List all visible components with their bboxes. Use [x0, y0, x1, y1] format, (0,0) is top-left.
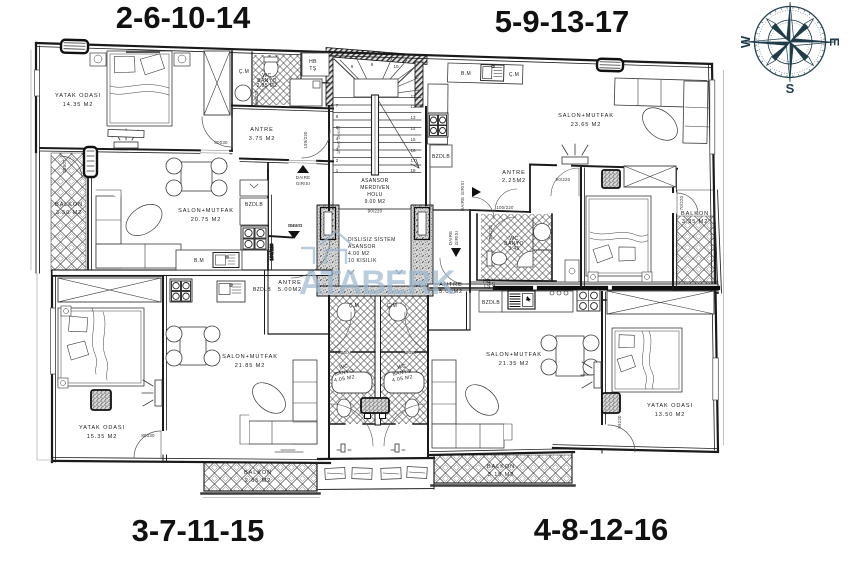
svg-text:10: 10 — [393, 64, 399, 69]
svg-text:TŞ: TŞ — [309, 66, 316, 72]
svg-text:11: 11 — [411, 94, 416, 99]
svg-text:13.50 M2: 13.50 M2 — [655, 412, 686, 418]
svg-text:ASANSOR: ASANSOR — [348, 244, 376, 250]
svg-text:W: W — [738, 35, 753, 48]
svg-text:20.75 M2: 20.75 M2 — [191, 217, 222, 223]
svg-text:BZDLB: BZDLB — [482, 300, 500, 306]
svg-text:5-9-13-17: 5-9-13-17 — [495, 4, 629, 39]
svg-text:SALON+MUTFAK: SALON+MUTFAK — [222, 354, 278, 360]
svg-text:GIRISI: GIRISI — [288, 223, 302, 228]
svg-text:99220: 99220 — [617, 415, 622, 429]
svg-text:12: 12 — [410, 104, 416, 109]
svg-text:14.35 M2: 14.35 M2 — [63, 102, 94, 108]
svg-text:GIRISI: GIRISI — [296, 181, 310, 186]
svg-text:16: 16 — [410, 148, 416, 153]
svg-text:15: 15 — [410, 137, 416, 142]
svg-text:E: E — [827, 38, 842, 47]
svg-text:B.M: B.M — [194, 258, 204, 264]
svg-text:BZDLB: BZDLB — [253, 287, 271, 293]
svg-text:BALKON: BALKON — [244, 470, 272, 476]
svg-text:MERDIVEN: MERDIVEN — [360, 185, 390, 191]
svg-text:YATAK ODASI: YATAK ODASI — [55, 93, 101, 99]
svg-text:YATAK ODASI: YATAK ODASI — [79, 425, 125, 431]
svg-text:3.75 M2: 3.75 M2 — [249, 136, 276, 142]
svg-text:05507: 05507 — [62, 159, 67, 173]
svg-text:0S200: 0S200 — [335, 350, 349, 355]
svg-text:3-7-11-15: 3-7-11-15 — [132, 513, 265, 548]
svg-text:BZDLB: BZDLB — [245, 202, 263, 208]
svg-text:90030: 90030 — [403, 350, 417, 355]
svg-text:BALKON: BALKON — [487, 464, 515, 470]
svg-text:HOLU: HOLU — [367, 192, 383, 198]
svg-text:ASANSOR: ASANSOR — [361, 178, 388, 184]
svg-text:DAIRE GIRISI: DAIRE GIRISI — [460, 181, 465, 211]
svg-text:90/220: 90/220 — [368, 209, 383, 214]
svg-text:9.00 M2: 9.00 M2 — [365, 199, 386, 205]
svg-text:B.M: B.M — [461, 71, 471, 77]
svg-text:21.85 M2: 21.85 M2 — [235, 363, 266, 369]
svg-text:ATABERK: ATABERK — [299, 264, 456, 302]
svg-text:13: 13 — [410, 115, 416, 120]
svg-text:Ç.M: Ç.M — [387, 303, 397, 309]
svg-text:SALON+MUTFAK: SALON+MUTFAK — [178, 208, 234, 214]
svg-text:4.00 M2: 4.00 M2 — [348, 251, 370, 257]
svg-text:HB: HB — [309, 59, 317, 65]
svg-text:BALKON: BALKON — [55, 202, 83, 208]
svg-text:YATAK ODASI: YATAK ODASI — [647, 403, 693, 409]
svg-text:GIRISI: GIRISI — [454, 231, 459, 245]
svg-text:199/220: 199/220 — [303, 131, 308, 149]
svg-text:DISLISIZ SISTEM: DISLISIZ SISTEM — [348, 237, 396, 243]
svg-text:18 RHT 16.6/30: 18 RHT 16.6/30 — [336, 125, 341, 154]
svg-text:15.35 M2: 15.35 M2 — [87, 434, 118, 440]
svg-text:Ç.M: Ç.M — [509, 72, 519, 78]
svg-text:SALON+MUTFAK: SALON+MUTFAK — [558, 113, 614, 119]
svg-text:DAIRE: DAIRE — [448, 231, 453, 245]
svg-text:S: S — [786, 81, 795, 96]
svg-text:ANTRE: ANTRE — [250, 127, 273, 133]
svg-text:Ç.M: Ç.M — [239, 69, 249, 75]
svg-text:14: 14 — [410, 126, 416, 131]
svg-text:3.45: 3.45 — [508, 246, 519, 252]
svg-text:70/220: 70/220 — [679, 195, 684, 210]
svg-text:DAIRE: DAIRE — [296, 175, 310, 180]
svg-text:80/220: 80/220 — [254, 90, 259, 105]
svg-text:3.35 M2: 3.35 M2 — [682, 219, 709, 225]
svg-text:80030: 80030 — [214, 140, 228, 145]
svg-text:TŞ: TŞ — [488, 282, 495, 288]
svg-text:18: 18 — [410, 168, 416, 173]
svg-text:3.15 M2: 3.15 M2 — [488, 472, 515, 478]
svg-text:2.65 M2: 2.65 M2 — [245, 478, 272, 484]
svg-text:21.35 M2: 21.35 M2 — [499, 361, 530, 367]
svg-text:ANTRE: ANTRE — [502, 170, 525, 176]
svg-text:80330: 80330 — [141, 433, 155, 438]
svg-text:2-6-10-14: 2-6-10-14 — [116, 0, 251, 35]
svg-text:17: 17 — [410, 158, 416, 163]
svg-text:100/220: 100/220 — [496, 205, 514, 210]
svg-text:23.65 M2: 23.65 M2 — [571, 122, 602, 128]
svg-text:BZDLB: BZDLB — [432, 154, 450, 160]
svg-text:3.50 M2: 3.50 M2 — [56, 210, 83, 216]
svg-text:80/220: 80/220 — [488, 224, 493, 239]
svg-text:100/220: 100/220 — [269, 243, 274, 261]
svg-text:2.25M2: 2.25M2 — [502, 178, 526, 184]
svg-text:4-8-12-16: 4-8-12-16 — [534, 512, 668, 547]
svg-text:SALON+MUTFAK: SALON+MUTFAK — [486, 352, 542, 358]
svg-text:BALKON: BALKON — [681, 211, 709, 217]
svg-text:Ç.M: Ç.M — [349, 303, 359, 309]
